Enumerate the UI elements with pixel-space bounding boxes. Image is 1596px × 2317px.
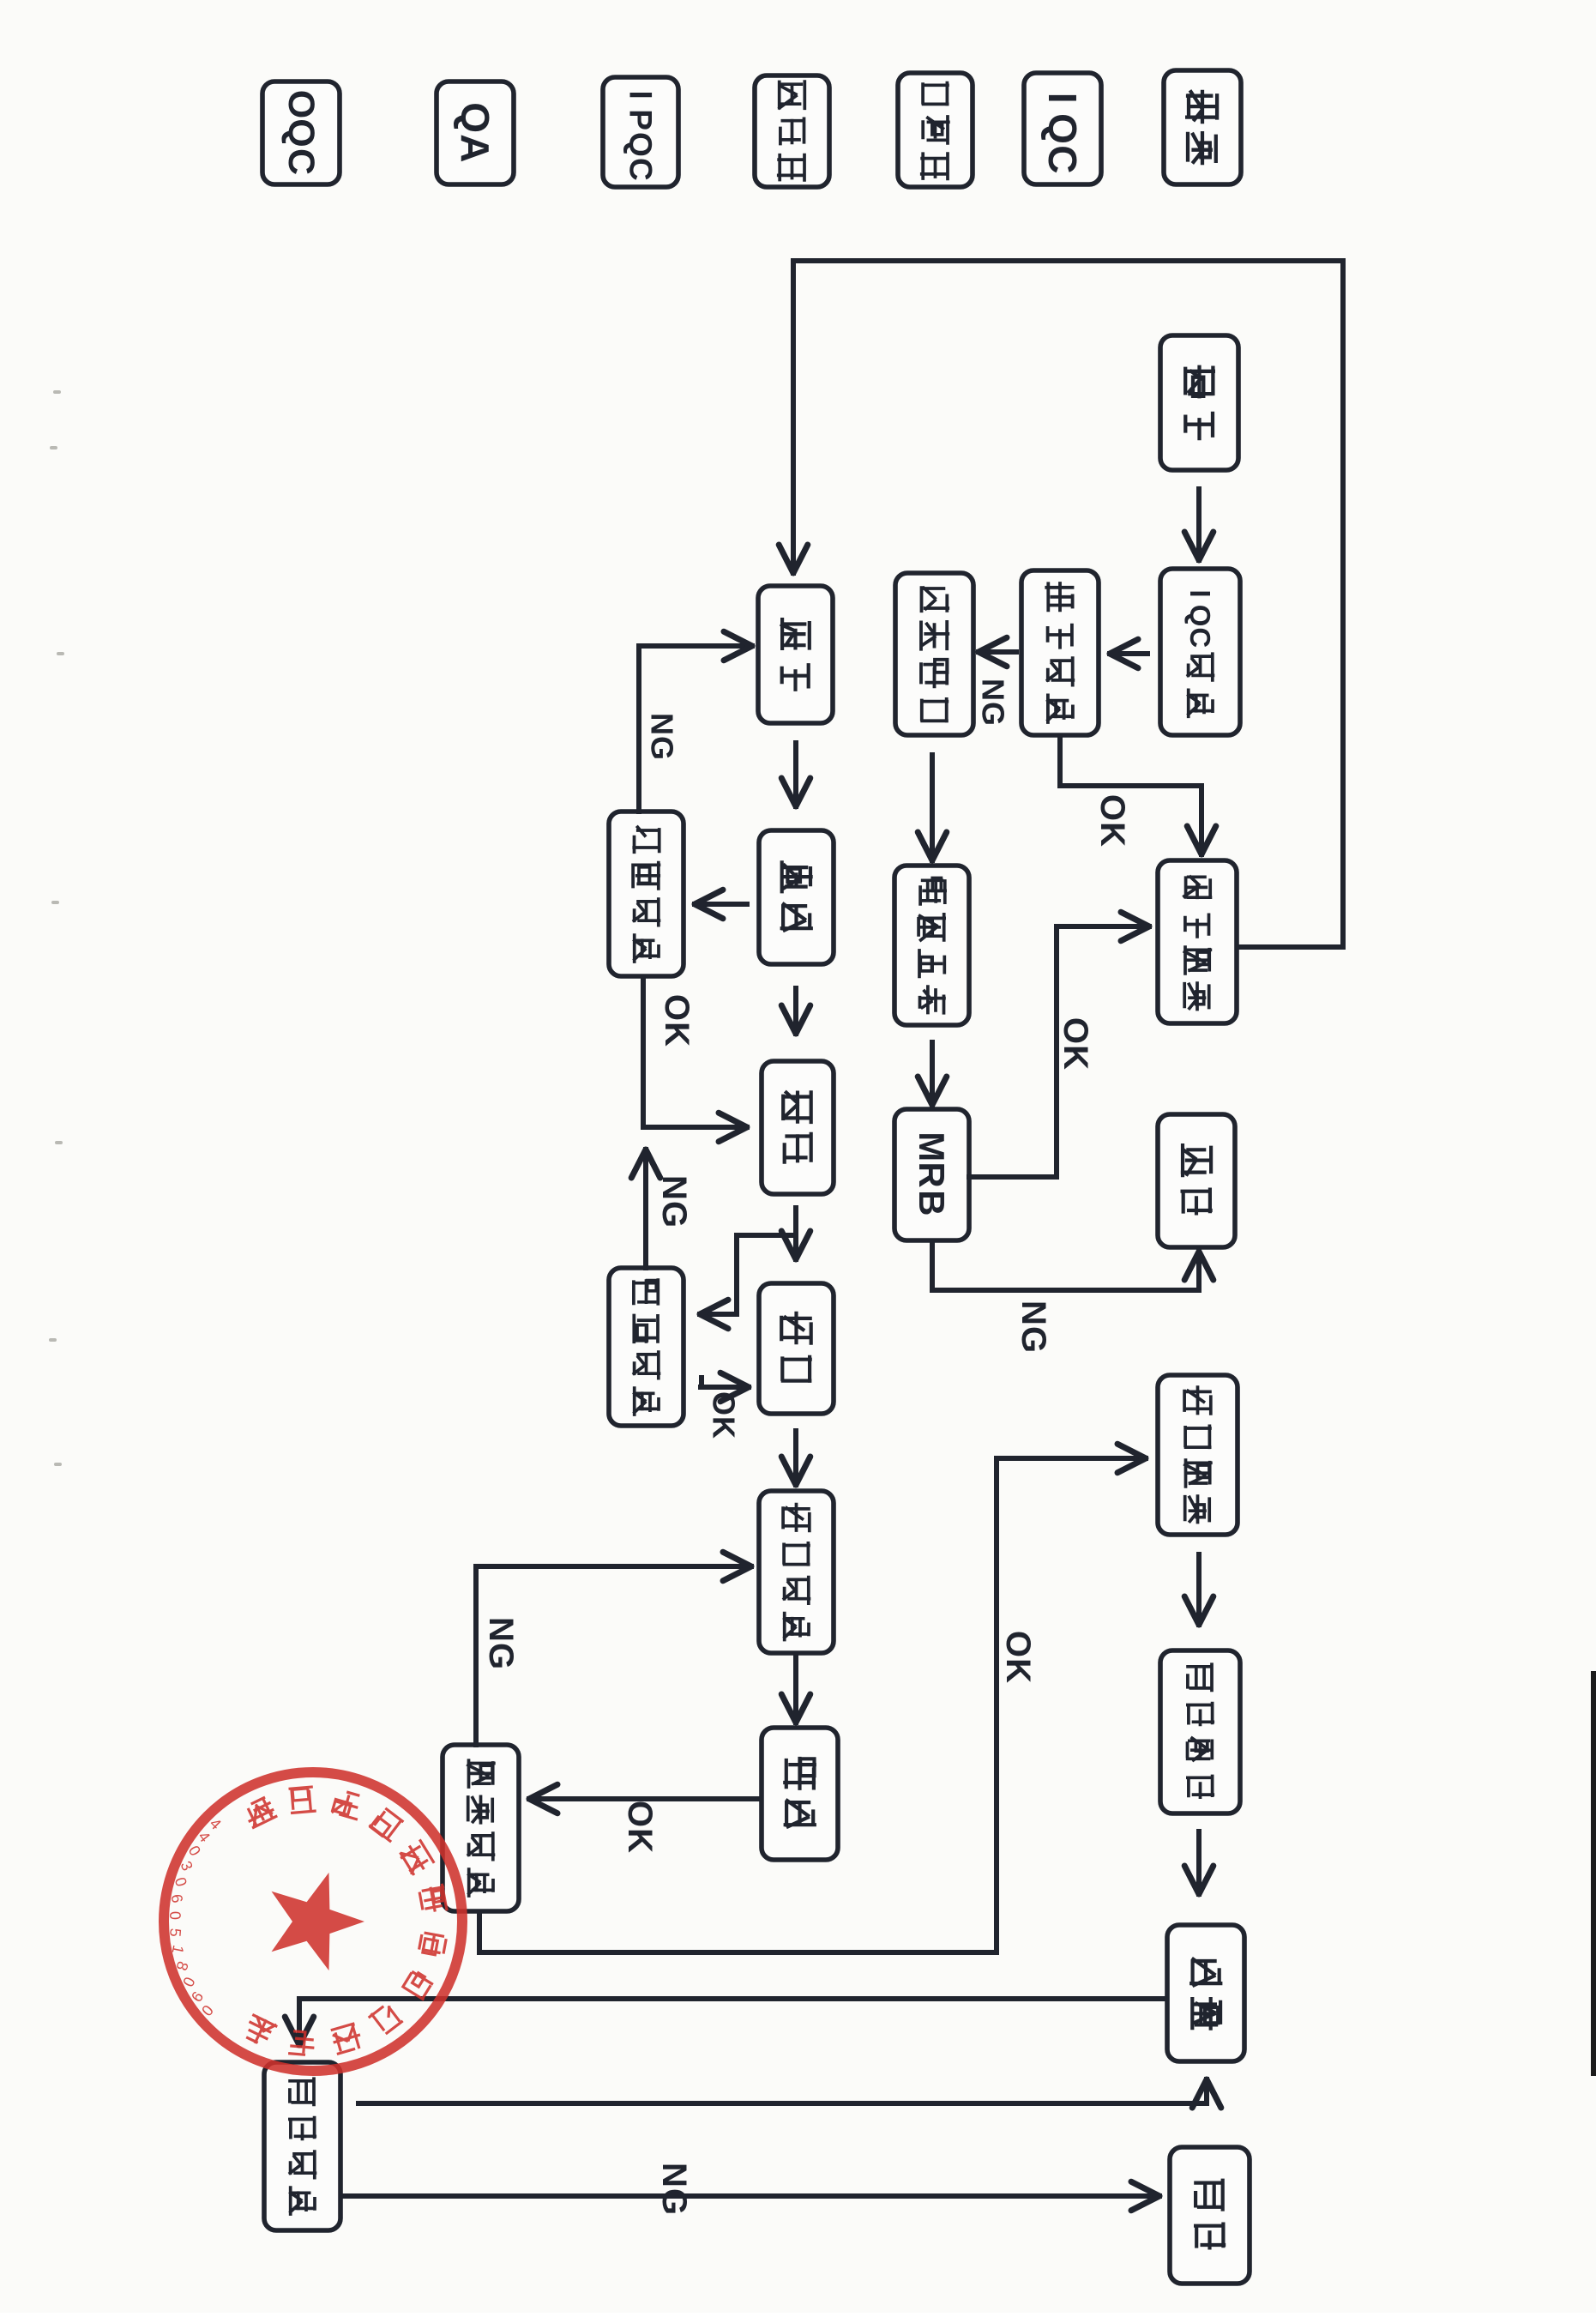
svg-text:K: K [658,1022,696,1047]
svg-text:O: O [658,994,696,1021]
svg-text:N: N [1015,1300,1052,1325]
svg-text:C: C [1040,145,1085,173]
svg-text:5: 5 [166,1928,184,1938]
svg-text:G: G [645,736,680,760]
svg-text:C: C [1184,627,1216,648]
svg-text:G: G [655,2188,693,2215]
svg-text:B: B [912,1190,952,1216]
svg-text:I: I [1184,589,1216,597]
svg-text:Q: Q [453,102,497,133]
svg-text:K: K [1057,1045,1094,1070]
svg-text:R: R [912,1162,952,1187]
svg-text:C: C [623,158,659,181]
svg-text:M: M [912,1131,952,1162]
svg-text:O: O [707,1391,742,1415]
svg-text:K: K [707,1416,742,1439]
svg-text:N: N [482,1617,520,1642]
svg-text:K: K [621,1828,659,1853]
svg-text:K: K [1093,822,1131,847]
svg-text:Q: Q [623,132,659,157]
svg-text:G: G [482,1643,520,1669]
svg-text:N: N [976,679,1011,701]
svg-text:O: O [1057,1017,1094,1044]
svg-text:N: N [645,713,680,735]
svg-text:G: G [976,702,1011,726]
svg-text:I: I [623,91,659,100]
svg-text:I: I [1040,93,1085,104]
svg-text:O: O [280,90,322,118]
svg-text:P: P [623,109,659,130]
svg-text:0: 0 [166,1911,184,1921]
svg-text:G: G [1015,1326,1052,1353]
svg-text:Q: Q [1184,605,1216,627]
svg-text:Q: Q [1040,113,1085,144]
svg-text:C: C [280,148,322,175]
svg-text:Q: Q [280,118,322,147]
svg-text:A: A [453,134,497,162]
svg-text:N: N [655,1175,693,1200]
svg-text:O: O [999,1631,1037,1657]
svg-text:O: O [621,1801,659,1827]
svg-text:N: N [655,2163,693,2187]
svg-text:G: G [655,1201,693,1228]
svg-text:K: K [999,1658,1037,1683]
svg-text:O: O [1093,794,1131,821]
